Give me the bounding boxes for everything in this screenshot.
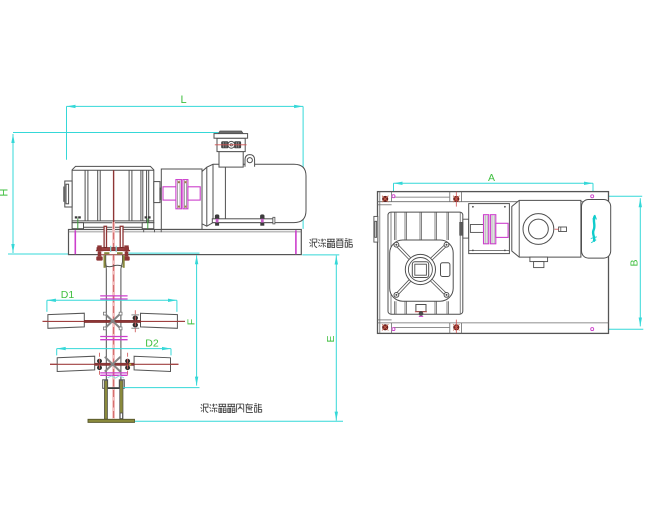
svg-text:A: A	[488, 172, 495, 184]
svg-text:H: H	[0, 188, 11, 196]
svg-text:E: E	[325, 335, 337, 342]
svg-text:F: F	[186, 319, 198, 325]
svg-text:D1: D1	[61, 289, 75, 301]
svg-text:D2: D2	[145, 337, 159, 349]
svg-text:L: L	[180, 94, 186, 106]
svg-text:B: B	[629, 259, 641, 266]
